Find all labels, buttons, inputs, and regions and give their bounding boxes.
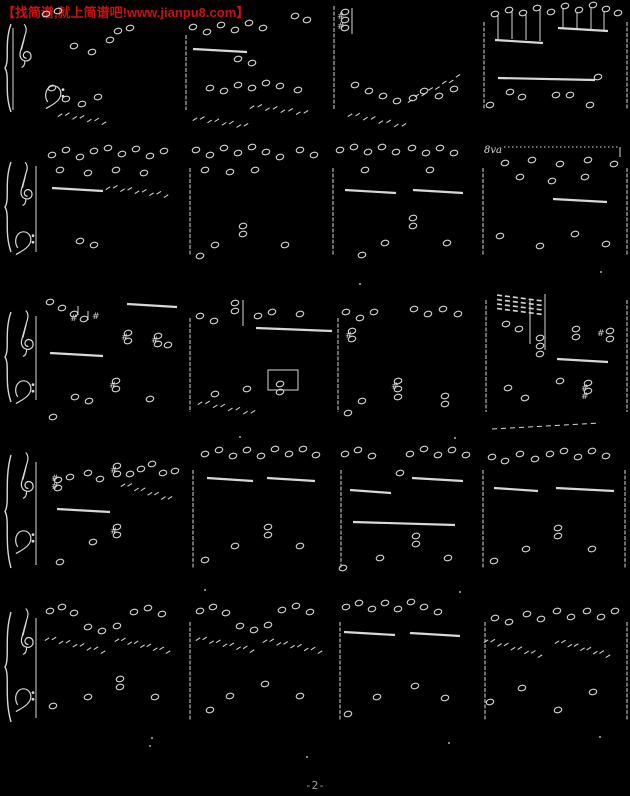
sheet-music-page: 【找简谱,就上简谱吧!www.jianpu8.com】 ##8va#######… xyxy=(0,0,630,796)
system-brace xyxy=(5,24,11,112)
ink-speck xyxy=(239,436,241,438)
sharp-sign: # xyxy=(109,381,117,391)
sharp-sign: # xyxy=(121,333,129,343)
staff-system-3: ########## xyxy=(5,294,627,429)
system-brace xyxy=(5,162,11,252)
system-brace xyxy=(5,312,11,402)
sharp-sign: # xyxy=(92,312,100,322)
bass-clef-icon xyxy=(16,531,31,554)
treble-clef-icon xyxy=(21,453,33,499)
octave-marking: 8va xyxy=(484,145,502,156)
score-canvas: ##8va############## xyxy=(0,0,630,796)
ink-speck xyxy=(454,437,456,439)
sharp-sign: # xyxy=(337,22,345,32)
ink-speck xyxy=(149,745,151,747)
sharp-sign: # xyxy=(391,382,399,392)
ink-speck xyxy=(600,271,602,273)
sharp-sign: # xyxy=(581,392,589,402)
ink-speck xyxy=(359,283,361,285)
bass-clef-icon xyxy=(16,689,31,712)
system-brace xyxy=(5,455,11,568)
sharp-sign: # xyxy=(345,331,353,341)
staff-system-4: #### xyxy=(5,445,625,571)
ink-speck xyxy=(599,736,601,738)
system-brace xyxy=(5,612,11,722)
sharp-sign: # xyxy=(70,314,78,324)
sharp-sign: # xyxy=(151,336,159,346)
sharp-sign: # xyxy=(597,329,605,339)
ink-speck xyxy=(306,756,308,758)
sharp-sign: # xyxy=(337,12,345,22)
page-number: -2- xyxy=(0,779,630,792)
staff-system-5 xyxy=(5,598,627,722)
sharp-sign: # xyxy=(110,466,118,476)
sharp-sign: # xyxy=(51,482,59,492)
bass-clef-icon xyxy=(16,232,31,255)
treble-clef-icon xyxy=(21,162,32,205)
ink-speck xyxy=(151,737,153,739)
sharp-sign: # xyxy=(110,527,118,537)
ink-speck xyxy=(204,589,206,591)
ink-speck xyxy=(448,742,450,744)
staff-system-2: 8va xyxy=(5,143,627,259)
treble-clef-icon xyxy=(20,24,31,67)
staff-system-1: ## xyxy=(5,1,627,127)
ink-speck xyxy=(459,591,461,593)
bass-clef-icon xyxy=(16,381,31,404)
treble-clef-icon xyxy=(21,311,33,357)
treble-clef-icon xyxy=(21,609,33,655)
